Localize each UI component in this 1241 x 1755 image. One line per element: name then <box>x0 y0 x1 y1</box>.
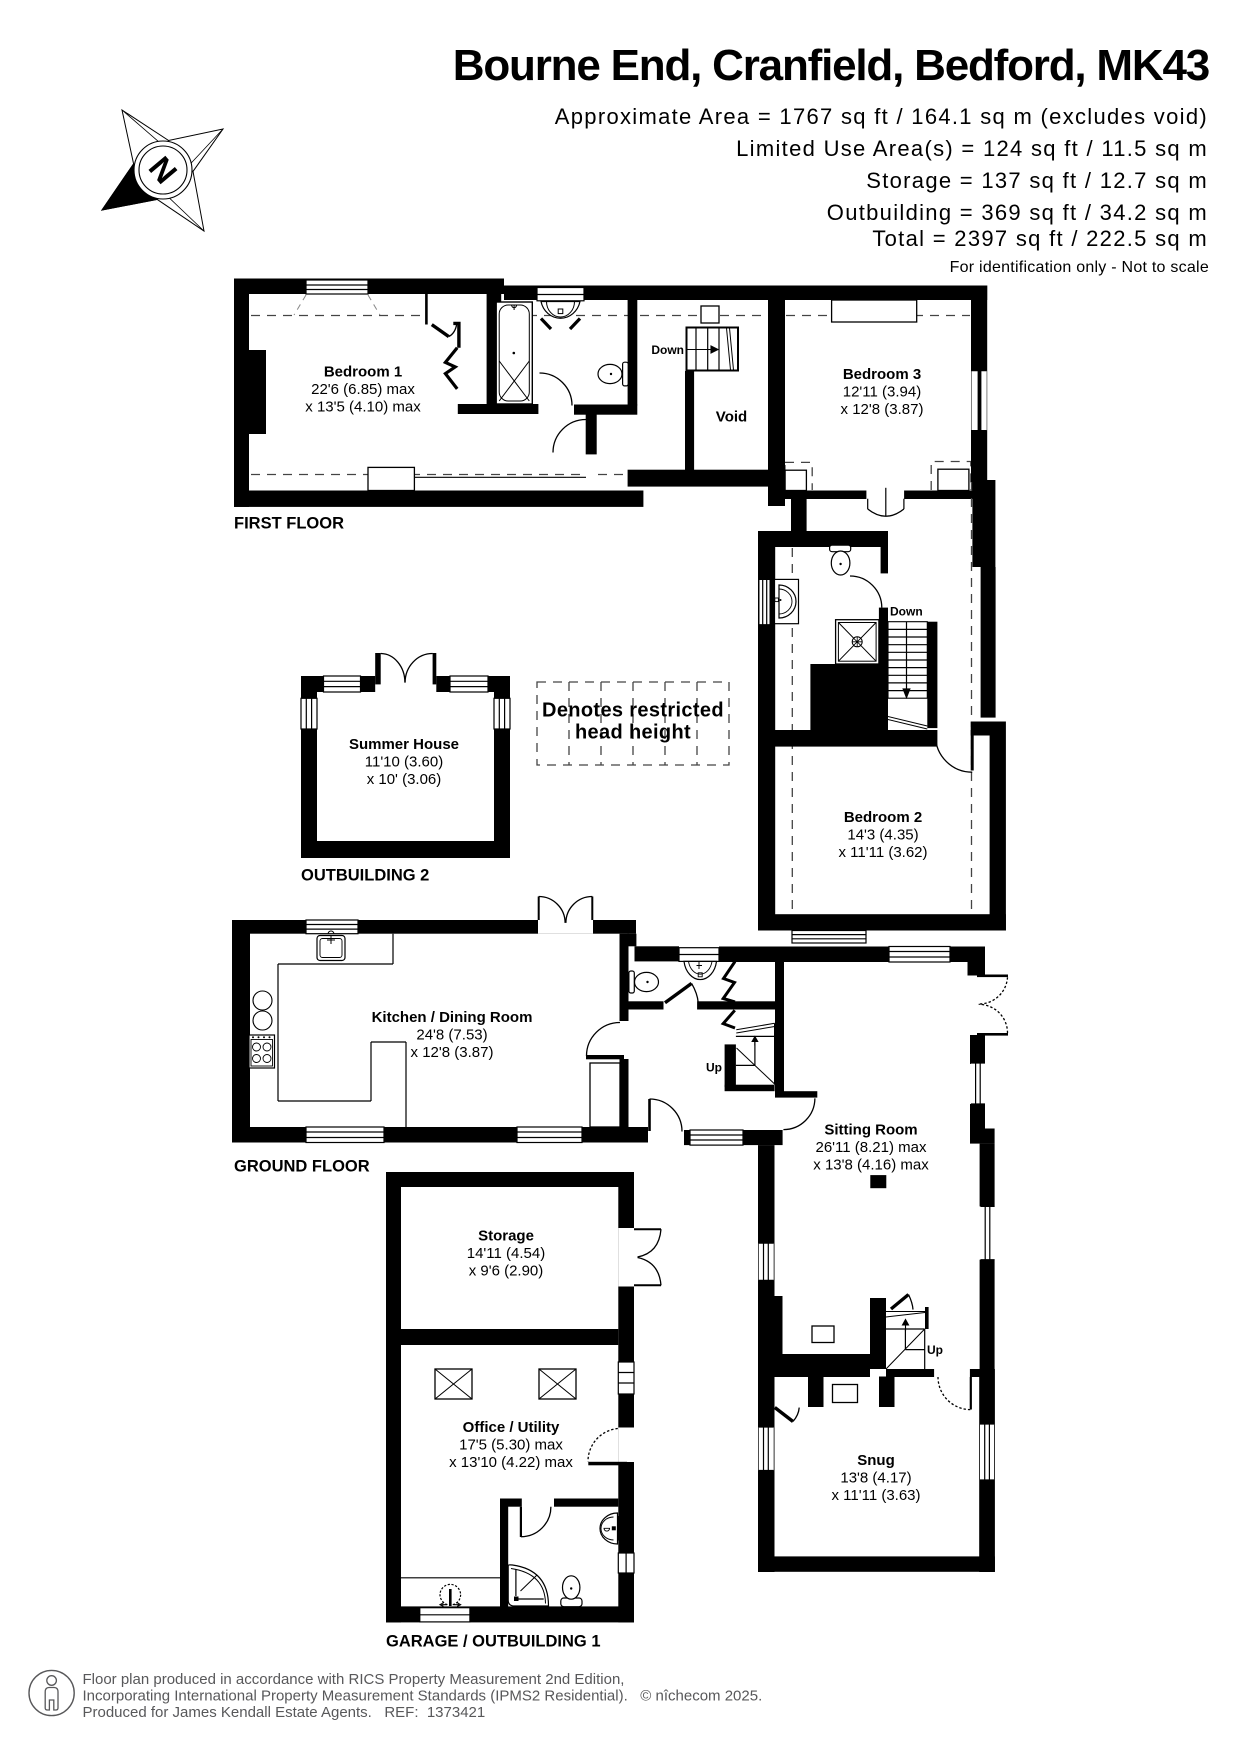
svg-text:x 9'6 (2.90): x 9'6 (2.90) <box>469 1263 544 1280</box>
svg-text:22'6 (6.85) max: 22'6 (6.85) max <box>311 381 415 398</box>
svg-text:Incorporating International Pr: Incorporating International Property Mea… <box>83 1688 763 1705</box>
svg-text:Bourne End, Cranfield, Bedford: Bourne End, Cranfield, Bedford, MK43 <box>453 41 1209 90</box>
svg-text:Storage: Storage <box>478 1228 534 1245</box>
svg-text:Limited Use Area(s) = 124 sq f: Limited Use Area(s) = 124 sq ft / 11.5 s… <box>736 136 1208 161</box>
svg-text:Approximate Area = 1767 sq ft: Approximate Area = 1767 sq ft / 164.1 sq… <box>555 104 1208 129</box>
svg-text:x 12'8 (3.87): x 12'8 (3.87) <box>411 1044 494 1061</box>
svg-text:Bedroom 2: Bedroom 2 <box>844 809 922 826</box>
svg-text:For identification only - Not: For identification only - Not to scale <box>950 259 1209 276</box>
svg-text:x 13'10 (4.22) max: x 13'10 (4.22) max <box>449 1454 573 1471</box>
svg-text:Office / Utility: Office / Utility <box>463 1419 560 1436</box>
svg-text:Bedroom 1: Bedroom 1 <box>324 364 402 381</box>
svg-text:17'5 (5.30) max: 17'5 (5.30) max <box>459 1437 563 1454</box>
svg-text:GARAGE / OUTBUILDING 1: GARAGE / OUTBUILDING 1 <box>386 1633 601 1651</box>
svg-text:12'11 (3.94): 12'11 (3.94) <box>843 384 921 401</box>
svg-text:Bedroom 3: Bedroom 3 <box>843 366 921 383</box>
svg-text:Up: Up <box>927 1343 943 1357</box>
svg-text:x 10' (3.06): x 10' (3.06) <box>367 771 442 788</box>
svg-text:Sitting Room: Sitting Room <box>824 1122 917 1139</box>
svg-text:13'8 (4.17): 13'8 (4.17) <box>840 1470 911 1487</box>
svg-text:x 11'11 (3.63): x 11'11 (3.63) <box>831 1487 920 1504</box>
svg-text:26'11 (8.21) max: 26'11 (8.21) max <box>816 1139 927 1156</box>
svg-text:14'11 (4.54): 14'11 (4.54) <box>467 1245 545 1262</box>
svg-text:GROUND FLOOR: GROUND FLOOR <box>234 1158 370 1176</box>
svg-text:Summer House: Summer House <box>349 736 459 753</box>
svg-text:x 13'5 (4.10) max: x 13'5 (4.10) max <box>305 399 421 416</box>
svg-text:Down: Down <box>651 343 684 357</box>
svg-text:14'3 (4.35): 14'3 (4.35) <box>847 827 918 844</box>
svg-text:24'8 (7.53): 24'8 (7.53) <box>416 1027 487 1044</box>
svg-text:x 13'8 (4.16) max: x 13'8 (4.16) max <box>813 1157 929 1174</box>
svg-text:head height: head height <box>575 722 691 744</box>
svg-text:Down: Down <box>890 605 923 619</box>
svg-text:x 11'11 (3.62): x 11'11 (3.62) <box>838 844 927 861</box>
svg-text:Denotes restricted: Denotes restricted <box>542 700 724 722</box>
svg-text:Produced for James Kendall Est: Produced for James Kendall Estate Agents… <box>83 1704 486 1721</box>
svg-text:Kitchen / Dining Room: Kitchen / Dining Room <box>372 1009 533 1026</box>
svg-text:Void: Void <box>716 409 747 426</box>
svg-text:Total = 2397 sq ft / 222.5 sq: Total = 2397 sq ft / 222.5 sq m <box>872 226 1208 251</box>
svg-text:OUTBUILDING 2: OUTBUILDING 2 <box>301 867 429 885</box>
svg-text:11'10 (3.60): 11'10 (3.60) <box>365 754 443 771</box>
svg-text:FIRST FLOOR: FIRST FLOOR <box>234 515 344 533</box>
svg-text:Storage = 137 sq ft / 12.7 sq: Storage = 137 sq ft / 12.7 sq m <box>866 168 1208 193</box>
svg-text:Outbuilding = 369 sq ft / 34.2: Outbuilding = 369 sq ft / 34.2 sq m <box>827 200 1208 225</box>
svg-text:Up: Up <box>706 1061 722 1075</box>
svg-text:Floor plan produced in accorda: Floor plan produced in accordance with R… <box>83 1671 625 1688</box>
svg-text:x 12'8 (3.87): x 12'8 (3.87) <box>841 401 924 418</box>
svg-text:Snug: Snug <box>857 1452 895 1469</box>
